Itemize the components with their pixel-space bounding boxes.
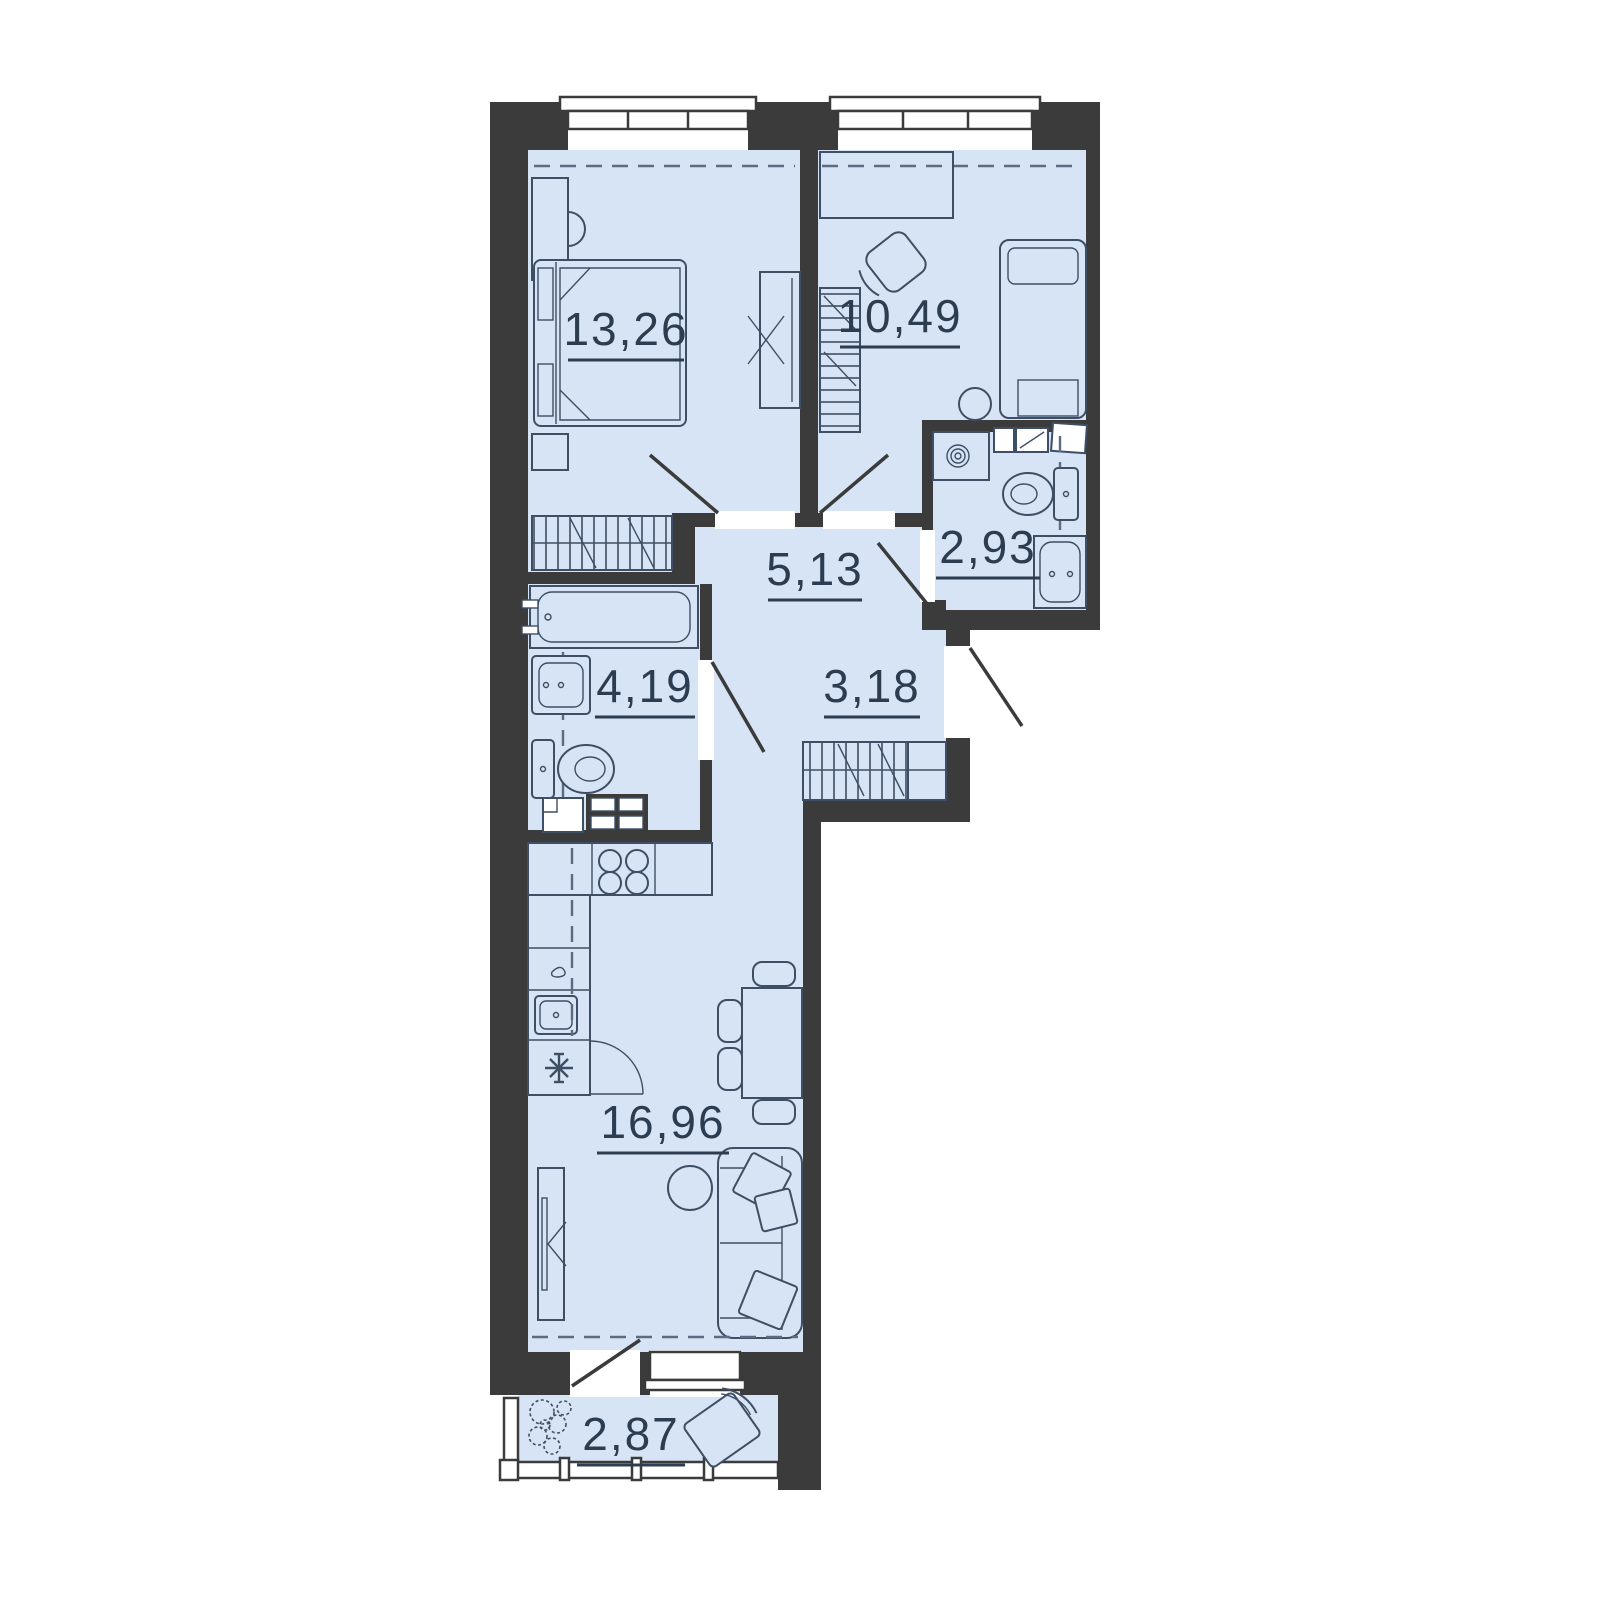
wall-hall-top-center bbox=[795, 513, 823, 527]
opening-door-bath-guest bbox=[920, 530, 935, 602]
single-bed bbox=[1000, 240, 1086, 418]
wall-bath-main-right-b bbox=[700, 760, 712, 830]
label-bathroom-main: 4,19 bbox=[596, 660, 694, 712]
wall-step bbox=[803, 800, 970, 822]
sink bbox=[532, 656, 590, 714]
pillow bbox=[754, 1188, 798, 1232]
floor-plan-page: 13,26 10,49 2,93 5,13 4,19 3,18 16,96 2,… bbox=[0, 0, 1600, 1600]
wall-entry-a bbox=[946, 630, 970, 646]
label-corridor: 3,18 bbox=[823, 660, 921, 712]
wall-bath-guest-bottom bbox=[922, 610, 1100, 630]
opening-door-bath-main bbox=[698, 660, 714, 760]
bathtub bbox=[522, 586, 698, 648]
label-bedroom-1: 13,26 bbox=[563, 303, 688, 355]
wall-bath-main-top bbox=[528, 572, 695, 584]
toilet bbox=[1003, 468, 1078, 520]
wall-bath-main-right-a bbox=[700, 584, 712, 660]
label-bedroom-2: 10,49 bbox=[837, 290, 962, 342]
toilet bbox=[532, 740, 614, 798]
wall-bedroom-divider bbox=[800, 150, 818, 513]
bathtub bbox=[1034, 536, 1086, 608]
sofa bbox=[718, 1148, 802, 1338]
door-leaf-entrance bbox=[970, 648, 1022, 726]
window-living bbox=[645, 1352, 745, 1390]
window-bedroom-2 bbox=[830, 97, 1040, 129]
label-hallway: 5,13 bbox=[766, 543, 864, 595]
washing-machine-shelf bbox=[994, 423, 1087, 453]
wall-hall-top-left bbox=[672, 513, 715, 527]
wall-balcony-right bbox=[778, 1352, 821, 1490]
wall-right-upper bbox=[1086, 150, 1100, 610]
wardrobe-hatched bbox=[532, 516, 672, 570]
floor-plan-drawing: 13,26 10,49 2,93 5,13 4,19 3,18 16,96 2,… bbox=[0, 0, 1600, 1600]
opening-entrance-door bbox=[944, 646, 972, 738]
opening-door-bedroom-1 bbox=[715, 511, 795, 529]
window-bedroom-1 bbox=[560, 97, 756, 129]
wall-living-right bbox=[803, 822, 821, 1352]
opening-door-bedroom-2 bbox=[823, 511, 895, 529]
wall-left bbox=[490, 150, 528, 1395]
label-kitchen-living: 16,96 bbox=[600, 1096, 725, 1148]
wall-hall-top-right bbox=[895, 513, 933, 527]
label-balcony: 2,87 bbox=[582, 1408, 680, 1460]
opening-balcony-door bbox=[570, 1350, 640, 1397]
label-bathroom-guest: 2,93 bbox=[939, 521, 1037, 573]
kitchen-sink bbox=[535, 996, 577, 1034]
washer-and-cabinet bbox=[543, 794, 648, 834]
